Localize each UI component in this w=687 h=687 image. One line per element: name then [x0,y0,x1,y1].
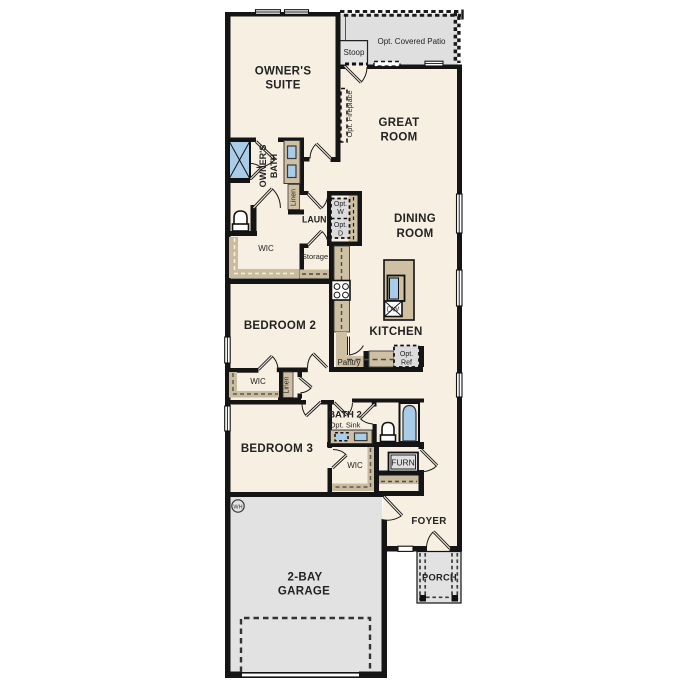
svg-text:2-BAY: 2-BAY [288,572,323,584]
svg-text:BEDROOM 2: BEDROOM 2 [244,320,316,332]
svg-text:WH: WH [233,504,242,510]
svg-text:Opt.: Opt. [400,351,413,358]
svg-text:LAUN.: LAUN. [302,215,329,225]
svg-text:OWNER'S: OWNER'S [255,66,312,78]
svg-text:FOYER: FOYER [411,516,446,527]
svg-text:WIC: WIC [258,244,274,253]
svg-text:Opt. Covered Patio: Opt. Covered Patio [377,37,446,46]
svg-text:SUITE: SUITE [265,80,300,92]
svg-text:ROOM: ROOM [381,132,418,144]
svg-text:KITCHEN: KITCHEN [369,326,422,338]
svg-text:ROOM: ROOM [397,228,434,240]
svg-text:Pantry: Pantry [337,358,360,367]
svg-text:Stoop: Stoop [344,48,365,57]
svg-text:D: D [338,231,343,238]
svg-text:GREAT: GREAT [379,117,420,129]
svg-text:PORCH: PORCH [422,573,457,583]
svg-text:WIC: WIC [250,377,266,386]
svg-text:Opt.: Opt. [334,222,347,229]
svg-text:BATH: BATH [269,154,279,178]
svg-text:OWNER'S: OWNER'S [258,145,268,188]
svg-text:Ref: Ref [401,360,412,367]
svg-text:DINING: DINING [394,213,436,225]
svg-text:Opt.: Opt. [334,201,347,208]
svg-text:WIC: WIC [347,461,363,470]
svg-text:W: W [337,209,344,216]
svg-text:BATH 2: BATH 2 [328,410,362,421]
svg-text:BEDROOM 3: BEDROOM 3 [241,443,313,455]
svg-text:GARAGE: GARAGE [278,586,330,598]
svg-text:Storage: Storage [302,252,328,261]
svg-text:Opt. Sink: Opt. Sink [330,421,361,430]
svg-text:Linen: Linen [291,189,298,206]
svg-text:Opt. Fireplace: Opt. Fireplace [345,90,354,137]
svg-text:DW: DW [387,305,400,314]
svg-text:Linen: Linen [284,376,291,393]
svg-text:FURN: FURN [391,458,415,468]
